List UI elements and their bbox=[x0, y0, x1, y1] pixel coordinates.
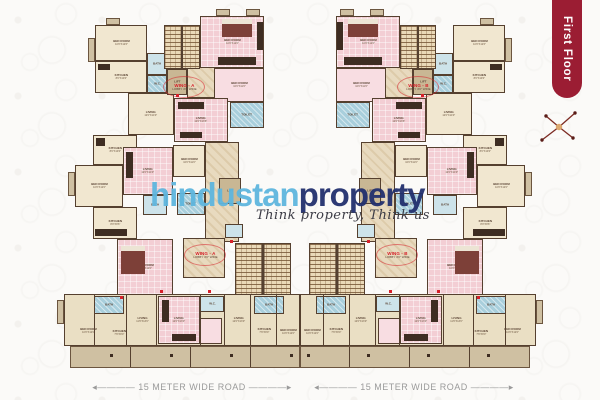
room-living: LIVING11'6"X13'0" bbox=[442, 300, 472, 340]
furniture bbox=[473, 229, 505, 236]
room-bed-room: BED ROOM10'0"X11'6" bbox=[336, 68, 386, 102]
furniture bbox=[180, 132, 202, 138]
watermark-tagline: Think property, Think us bbox=[256, 208, 430, 223]
room-area bbox=[370, 9, 384, 16]
wall bbox=[323, 294, 324, 346]
wing-label: WING - BLOBBY 4'6" WIDE bbox=[376, 244, 418, 266]
room-kitchen: KITCHEN7'6"X9'0" bbox=[252, 318, 276, 344]
floorplan-image: BED ROOM10'0"X12'6"BED ROOM10'0"X12'6"KI… bbox=[0, 0, 600, 400]
wall bbox=[349, 294, 350, 346]
wall bbox=[443, 294, 444, 346]
furniture bbox=[98, 64, 110, 70]
room-area bbox=[225, 224, 243, 238]
wall bbox=[200, 294, 201, 346]
room-area bbox=[216, 9, 230, 16]
room-bed-room: BED ROOM10'0"X12'0" bbox=[75, 165, 123, 207]
wall bbox=[505, 294, 506, 346]
staircase bbox=[164, 25, 200, 69]
furniture bbox=[172, 334, 196, 341]
first-floor-banner: First Floor bbox=[552, 0, 582, 98]
room-area bbox=[70, 346, 300, 368]
room-bath: BATH bbox=[254, 296, 284, 314]
furniture bbox=[348, 19, 378, 24]
furniture bbox=[404, 334, 428, 341]
room-area bbox=[525, 172, 532, 196]
furniture bbox=[178, 102, 204, 109]
room-bed-room: BED ROOM10'0"X11'0" bbox=[395, 145, 427, 177]
wall bbox=[349, 347, 350, 367]
room-bed-room: BED ROOM10'0"X12'6" bbox=[453, 25, 505, 61]
room-area bbox=[106, 18, 120, 25]
room-bath: BATH bbox=[476, 296, 506, 314]
wall bbox=[126, 294, 127, 346]
furniture bbox=[490, 64, 502, 70]
staircase bbox=[309, 243, 365, 295]
room-toilet: TOILET bbox=[336, 102, 370, 128]
furniture bbox=[218, 57, 256, 65]
room-bed-room: BED ROOM10'0"X12'0" bbox=[300, 318, 324, 346]
room-bed-room: BED ROOM10'0"X12'0" bbox=[494, 316, 530, 346]
furniture bbox=[162, 300, 169, 322]
unit-marker bbox=[437, 290, 440, 293]
unit-marker bbox=[389, 290, 392, 293]
room-bed-room: BED ROOM10'0"X12'0" bbox=[477, 165, 525, 207]
room-area bbox=[88, 38, 95, 62]
room-bed-room: BED ROOM10'0"X12'0" bbox=[276, 318, 300, 346]
terrace-column bbox=[110, 354, 113, 357]
furniture bbox=[495, 138, 504, 146]
room-living: LIVING11'6"X13'0" bbox=[128, 300, 158, 340]
room-bed-room: BED ROOM10'0"X12'6" bbox=[95, 25, 147, 61]
furniture bbox=[257, 22, 263, 50]
room-area bbox=[536, 300, 543, 324]
terrace-column bbox=[487, 354, 490, 357]
wall bbox=[375, 294, 376, 346]
wall bbox=[190, 347, 191, 367]
room-area bbox=[200, 318, 222, 344]
furniture bbox=[431, 300, 438, 322]
wing-label: WING - ALOBBY 4'6" WIDE bbox=[184, 244, 226, 266]
unit-marker bbox=[208, 290, 211, 293]
wall bbox=[130, 347, 131, 367]
room-w-c: W.C. bbox=[200, 296, 224, 312]
room-living: LIVING12'0"X14'0" bbox=[128, 93, 174, 135]
unit-marker bbox=[367, 240, 370, 243]
furniture bbox=[126, 152, 133, 178]
unit-marker bbox=[120, 296, 123, 299]
wall bbox=[94, 294, 95, 346]
room-w-c: W.C. bbox=[376, 296, 400, 312]
furniture bbox=[455, 246, 479, 251]
terrace-column bbox=[307, 354, 310, 357]
room-bed-room: BED ROOM10'0"X11'0" bbox=[173, 145, 205, 177]
wall bbox=[224, 294, 225, 346]
room-bed-room: BED ROOM10'0"X12'0" bbox=[70, 316, 106, 346]
wing-label: WING - ALOBBY 4'6" WIDE bbox=[163, 76, 205, 98]
furniture bbox=[337, 22, 343, 50]
terrace-column bbox=[427, 354, 430, 357]
furniture bbox=[398, 132, 420, 138]
room-bed-room: BED ROOM10'0"X11'6" bbox=[214, 68, 264, 102]
furniture bbox=[96, 138, 105, 146]
wall bbox=[276, 294, 277, 346]
room-area bbox=[480, 18, 494, 25]
furniture bbox=[344, 57, 382, 65]
staircase bbox=[235, 243, 291, 295]
room-area bbox=[340, 9, 354, 16]
room-area bbox=[57, 300, 64, 324]
room-toilet: TOILET bbox=[230, 102, 264, 128]
wall bbox=[156, 294, 157, 346]
wing-label: WING - BLOBBY 4'6" WIDE bbox=[397, 76, 439, 98]
terrace-column bbox=[170, 354, 173, 357]
road-label-right: 15 METER WIDE ROAD bbox=[314, 377, 514, 395]
furniture bbox=[222, 19, 252, 24]
furniture bbox=[121, 246, 145, 251]
room-living: LIVING12'0"X14'0" bbox=[426, 93, 472, 135]
compass-icon bbox=[536, 104, 582, 150]
room-area bbox=[357, 224, 375, 238]
terrace-column bbox=[367, 354, 370, 357]
room-area bbox=[505, 38, 512, 62]
staircase bbox=[400, 25, 436, 69]
banner-label: First Floor bbox=[561, 16, 573, 82]
wall bbox=[399, 294, 400, 346]
unit-marker bbox=[477, 296, 480, 299]
room-area bbox=[246, 9, 260, 16]
furniture bbox=[95, 229, 127, 236]
road-label-left: 15 METER WIDE ROAD bbox=[92, 377, 292, 395]
room-area bbox=[300, 346, 530, 368]
wall bbox=[469, 347, 470, 367]
room-bath: BATH bbox=[433, 53, 453, 75]
wall bbox=[250, 347, 251, 367]
terrace-column bbox=[230, 354, 233, 357]
room-area bbox=[378, 318, 400, 344]
room-area bbox=[68, 172, 75, 196]
room-bath: BATH bbox=[433, 195, 457, 215]
unit-marker bbox=[230, 240, 233, 243]
wall bbox=[473, 294, 474, 346]
furniture bbox=[396, 102, 422, 109]
wall bbox=[409, 347, 410, 367]
room-kitchen: KITCHEN7'6"X9'0" bbox=[324, 318, 348, 344]
room-living: LIVING12'0"X13'0" bbox=[346, 300, 376, 340]
room-bath: BATH bbox=[316, 296, 346, 314]
unit-marker bbox=[160, 290, 163, 293]
wall bbox=[300, 294, 301, 346]
terrace-column bbox=[290, 354, 293, 357]
furniture bbox=[467, 152, 474, 178]
wall bbox=[250, 294, 251, 346]
